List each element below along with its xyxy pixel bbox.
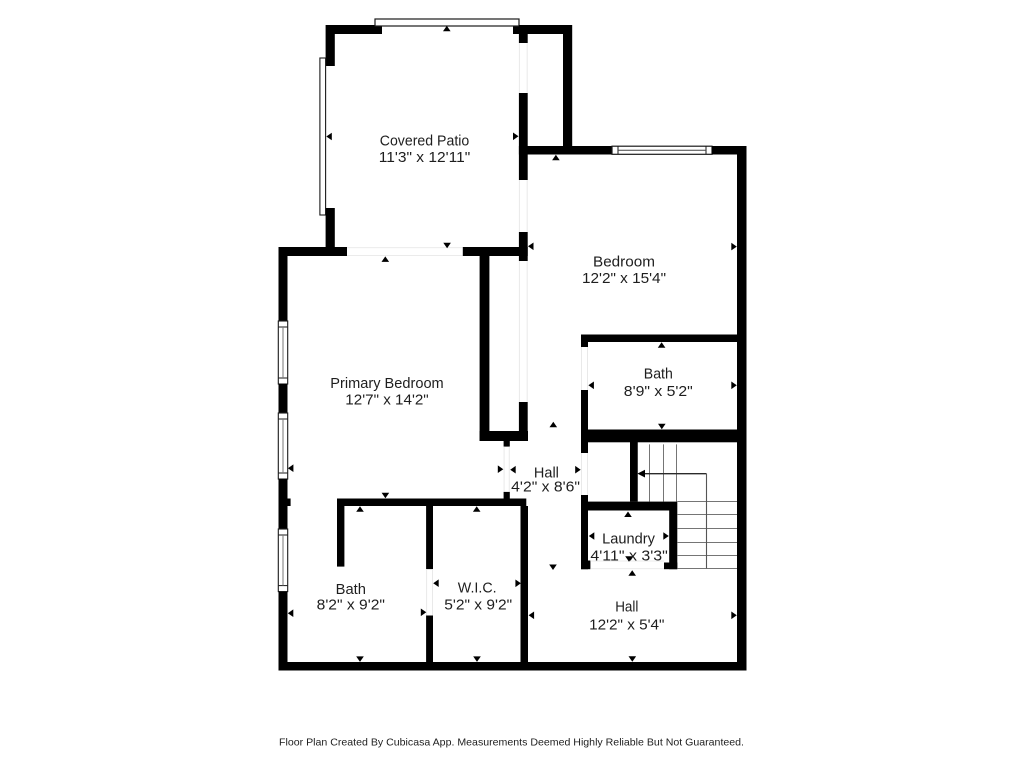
svg-text:Hall: Hall	[615, 599, 638, 616]
svg-text:8'2" x 9'2": 8'2" x 9'2"	[317, 597, 385, 614]
svg-text:Bath: Bath	[644, 366, 673, 383]
svg-text:Floor Plan Created By Cubicasa: Floor Plan Created By Cubicasa App. Meas…	[279, 737, 744, 749]
svg-text:W.I.C.: W.I.C.	[458, 580, 497, 597]
svg-text:Bath: Bath	[336, 581, 366, 598]
svg-text:Bedroom: Bedroom	[593, 253, 655, 270]
svg-text:12'7" x 14'2": 12'7" x 14'2"	[345, 391, 428, 408]
svg-text:8'9" x 5'2": 8'9" x 5'2"	[624, 383, 693, 400]
svg-text:12'2" x 5'4": 12'2" x 5'4"	[589, 616, 664, 633]
svg-text:5'2" x 9'2": 5'2" x 9'2"	[444, 596, 512, 613]
svg-text:11'3" x 12'11": 11'3" x 12'11"	[379, 149, 471, 166]
svg-text:4'2" x 8'6": 4'2" x 8'6"	[511, 479, 580, 496]
svg-text:Primary Bedroom: Primary Bedroom	[330, 375, 443, 392]
svg-text:4'11" x 3'3": 4'11" x 3'3"	[590, 548, 667, 565]
svg-text:Laundry: Laundry	[602, 531, 655, 548]
svg-text:12'2" x 15'4": 12'2" x 15'4"	[582, 270, 666, 287]
svg-text:Covered Patio: Covered Patio	[380, 132, 470, 149]
